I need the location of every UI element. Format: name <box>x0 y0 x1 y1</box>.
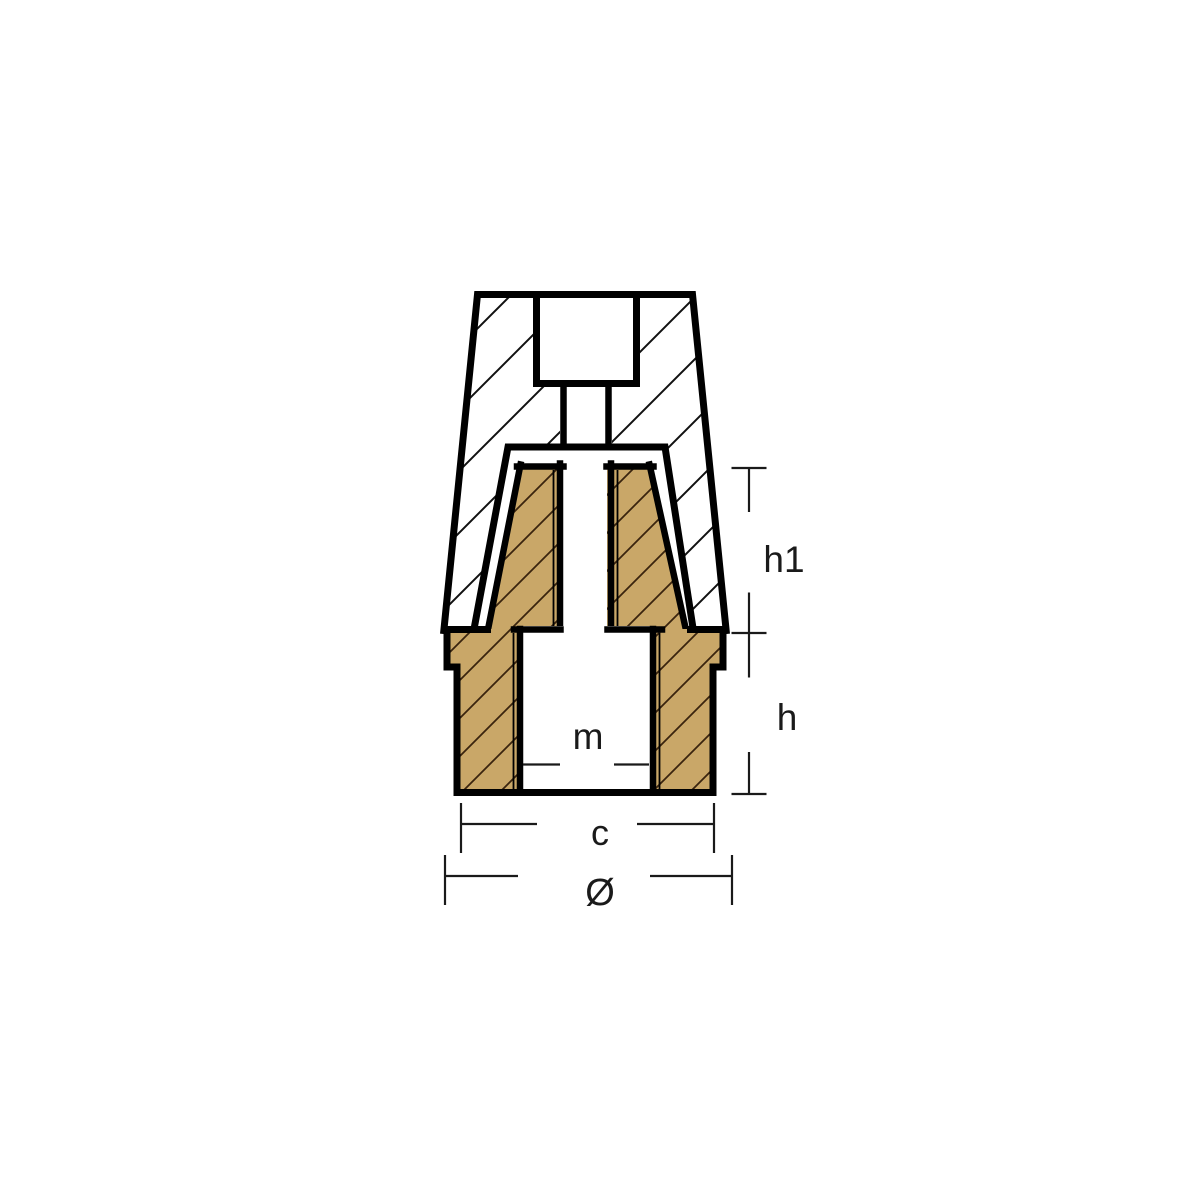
threaded-hole-group <box>514 626 663 793</box>
label-h: h <box>777 697 798 738</box>
hex-recess <box>537 295 637 384</box>
label-h1: h1 <box>763 539 804 580</box>
label-c: c <box>591 812 609 853</box>
drawing-canvas: h1 h m c Ø <box>0 0 1200 1200</box>
stem-channel <box>560 387 612 448</box>
label-diameter: Ø <box>585 872 615 914</box>
technical-drawing: h1 h m c Ø <box>0 0 1200 1200</box>
stem-channel-group <box>560 384 612 449</box>
label-m: m <box>573 716 604 757</box>
